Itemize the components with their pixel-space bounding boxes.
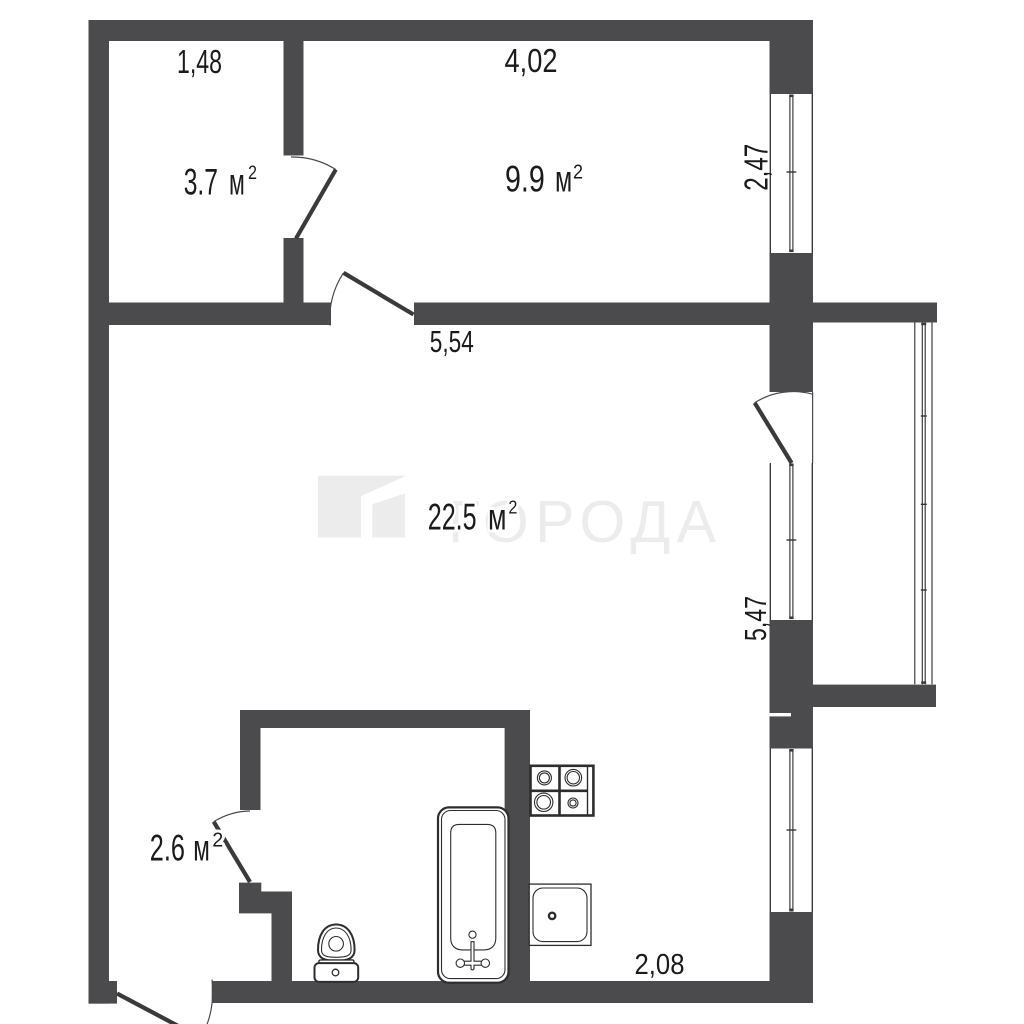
svg-text:2.6: 2.6 [150, 828, 185, 869]
svg-text:2,08: 2,08 [635, 949, 685, 981]
svg-text:м: м [488, 497, 507, 538]
svg-text:22.5: 22.5 [428, 497, 477, 538]
svg-text:5,54: 5,54 [430, 324, 474, 359]
svg-text:2: 2 [248, 162, 257, 184]
svg-text:4,02: 4,02 [505, 42, 558, 79]
svg-text:м: м [193, 828, 210, 869]
svg-text:2: 2 [212, 829, 223, 851]
svg-text:2: 2 [508, 498, 517, 518]
svg-text:2,47: 2,47 [738, 144, 775, 191]
svg-text:9.9: 9.9 [505, 159, 545, 200]
svg-text:3.7: 3.7 [184, 162, 218, 203]
svg-text:1,48: 1,48 [177, 43, 222, 80]
svg-text:5,47: 5,47 [738, 596, 773, 641]
svg-text:м: м [555, 159, 572, 200]
svg-text:м: м [229, 162, 245, 203]
svg-text:2: 2 [573, 161, 583, 183]
